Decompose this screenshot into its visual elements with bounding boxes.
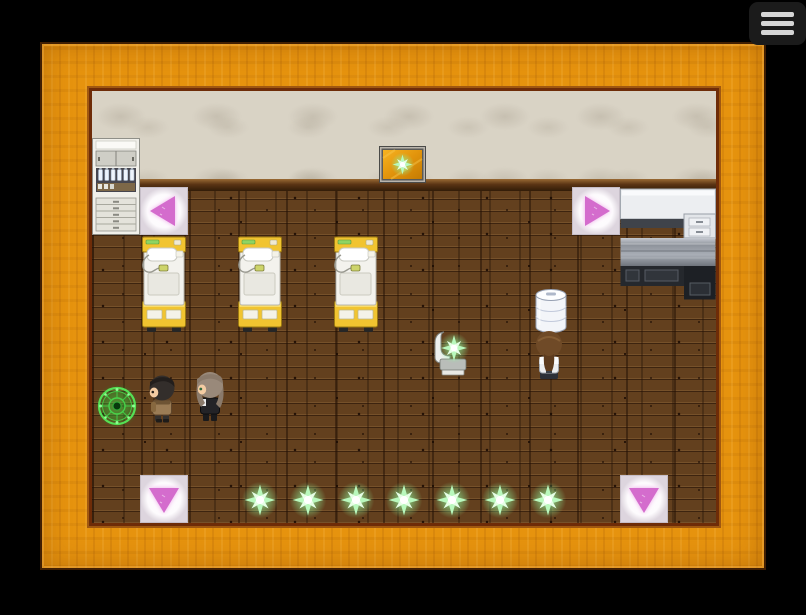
game-frame [40, 42, 766, 570]
sparkle-item-1[interactable] [240, 480, 280, 520]
screen: { "menu": { "name": "hamburger-menu", "i… [0, 0, 806, 615]
teleport-pad-left[interactable] [140, 187, 188, 235]
hospital-bed-1 [140, 235, 188, 333]
teleport-pad-down-right[interactable] [620, 475, 668, 523]
npc-nurse[interactable] [529, 329, 569, 381]
game-map[interactable] [92, 91, 716, 523]
sparkle-item-2[interactable] [288, 480, 328, 520]
save-point-circle[interactable] [94, 383, 140, 429]
sparkle-item-6[interactable] [480, 480, 520, 520]
menu-bar [761, 30, 794, 35]
teleport-pad-right[interactable] [572, 187, 620, 235]
teleport-pad-down-left[interactable] [140, 475, 188, 523]
sparkle-item-3[interactable] [336, 480, 376, 520]
medicine-cabinet [92, 138, 140, 235]
hamburger-menu-button[interactable] [749, 2, 806, 45]
sparkle-item-4[interactable] [384, 480, 424, 520]
menu-bar [761, 12, 794, 17]
reception-desk [620, 188, 716, 300]
water-tank [533, 287, 569, 333]
npc-woman[interactable] [189, 369, 231, 425]
menu-bar [761, 21, 794, 26]
sparkle-item-7[interactable] [528, 480, 568, 520]
hospital-bed-3 [332, 235, 380, 333]
hospital-bed-2 [236, 235, 284, 333]
npc-man[interactable] [142, 373, 182, 425]
sparkle-item-5[interactable] [432, 480, 472, 520]
sprite-layer [92, 91, 716, 523]
wall-hatch-sparkle[interactable] [379, 146, 426, 183]
chair-with-sparkle[interactable] [428, 329, 476, 377]
